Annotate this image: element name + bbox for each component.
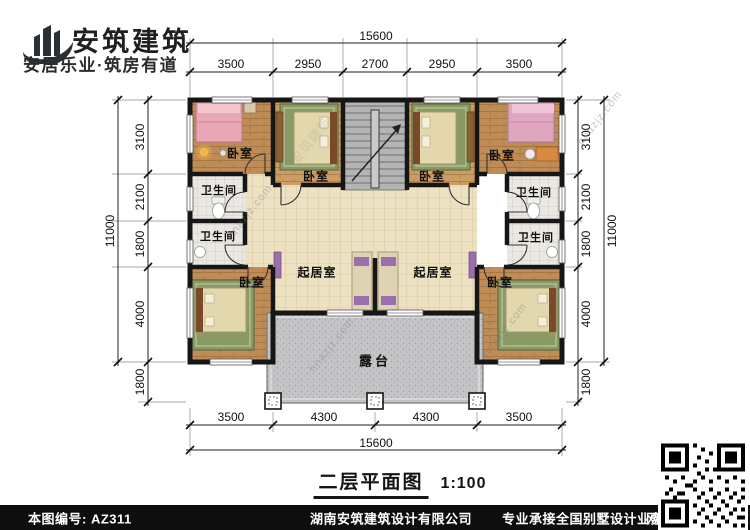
dim-right-seg-2: 2100 [579, 184, 593, 211]
dim-bottom-total: 15600 [359, 436, 392, 450]
drawing-title: 二层平面图 [314, 467, 429, 499]
dim-right-seg-4: 4000 [579, 301, 593, 328]
drawing-sheet: 安筑建筑 安居乐业·筑房有道 [0, 0, 750, 530]
room-label-bath-left-2: 卫生间 [200, 228, 236, 244]
dim-top-seg-1: 3500 [218, 57, 245, 71]
room-label-bedroom-inner-right: 卧室 [419, 168, 445, 185]
dim-top-seg-5: 3500 [506, 57, 533, 71]
service-line: 专业承接全国别墅设计业务 [502, 508, 664, 527]
staircase [343, 100, 407, 190]
room-label-terrace: 露台 [359, 351, 391, 370]
dim-bottom-seg-1: 3500 [218, 410, 245, 424]
dim-top-seg-3: 2700 [362, 57, 389, 71]
room-label-bath-right-2: 卫生间 [518, 229, 554, 245]
room-label-bedroom-bottom-left: 卧室 [239, 274, 265, 291]
room-label-bath-left-1: 卫生间 [201, 182, 237, 198]
room-label-bedroom-top-right: 卧室 [489, 147, 515, 164]
room-label-bedroom-top-left: 卧室 [227, 145, 253, 162]
room-label-living-left: 起居室 [297, 264, 336, 281]
room-label-bedroom-bottom-right: 卧室 [487, 274, 513, 291]
room-label-bath-right-1: 卫生间 [516, 184, 552, 200]
dim-left-total: 11000 [103, 215, 117, 247]
title-block: 二层平面图 1:100 [314, 467, 487, 499]
dim-top-seg-2: 2950 [295, 57, 322, 71]
dim-left-seg-4: 4000 [133, 301, 147, 328]
company-name: 湖南安筑建筑设计有限公司 [310, 508, 472, 527]
dim-top-seg-4: 2950 [429, 57, 456, 71]
dim-bottom-seg-4: 3500 [506, 410, 533, 424]
dim-bottom-seg-2: 4300 [311, 410, 338, 424]
dim-right-seg-5: 1800 [579, 369, 593, 396]
dim-bottom-seg-3: 4300 [413, 410, 440, 424]
room-label-living-right: 起居室 [413, 264, 452, 281]
dim-right-seg-3: 1800 [579, 231, 593, 258]
sheet-number: 本图编号: AZ311 [28, 508, 132, 527]
dim-right-seg-1: 3100 [579, 124, 593, 151]
dim-left-seg-2: 2100 [133, 184, 147, 211]
dim-left-seg-1: 3100 [133, 124, 147, 151]
floor-plan [0, 0, 750, 530]
dim-right-total: 11000 [605, 215, 619, 247]
footer-bar: 本图编号: AZ311 湖南安筑建筑设计有限公司 专业承接全国别墅设计业务 咨询… [0, 505, 750, 530]
qr-code [658, 441, 748, 530]
room-label-bedroom-inner-left: 卧室 [303, 168, 329, 185]
drawing-scale: 1:100 [441, 475, 487, 493]
dim-top-total: 15600 [359, 29, 392, 43]
dim-left-seg-3: 1800 [133, 231, 147, 258]
dim-left-seg-5: 1800 [133, 369, 147, 396]
